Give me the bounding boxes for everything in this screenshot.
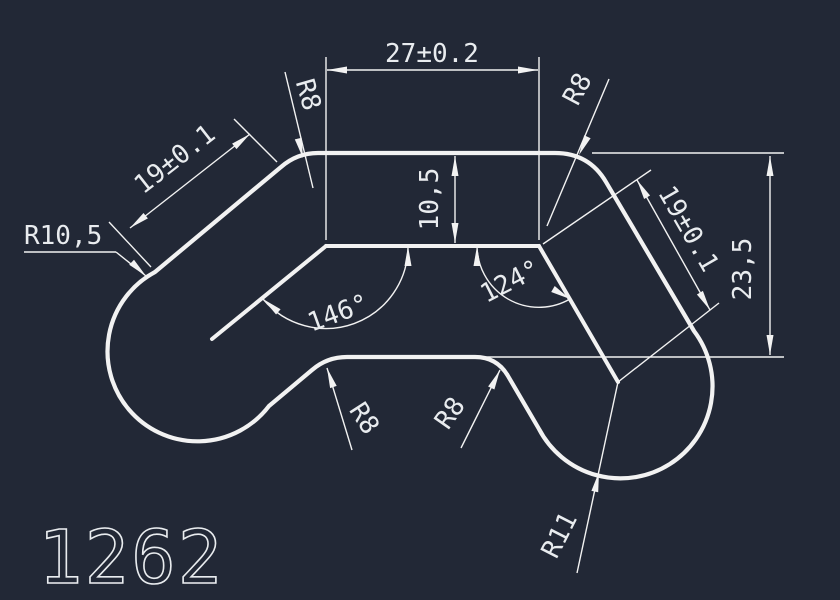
dim-label-overall-height: 23,5 xyxy=(728,238,758,301)
arrowhead-icon xyxy=(327,67,347,74)
arrowhead-icon xyxy=(232,134,250,149)
arrowhead-icon xyxy=(263,299,281,315)
radius-label-top-right: R8 xyxy=(557,68,598,110)
angle-label-left: 146° xyxy=(304,289,373,339)
arrowhead-icon xyxy=(697,291,710,310)
radius-left-cap: R10,5 xyxy=(24,221,146,276)
arrowhead-icon xyxy=(129,260,146,276)
radius-label-right-cap: R11 xyxy=(536,508,584,563)
radius-top-left: R8 xyxy=(285,72,326,188)
drawing-canvas: 27±0.2 10,5 23,5 19±0.1 xyxy=(0,0,840,600)
part-profile xyxy=(108,153,713,478)
radius-dip-left: R8 xyxy=(327,368,385,450)
extension-line xyxy=(109,222,151,267)
radius-label-top-left: R8 xyxy=(289,76,326,114)
arrowhead-icon xyxy=(474,246,481,266)
arrowhead-icon xyxy=(405,246,412,266)
angle-dim-left-bend: 146° xyxy=(263,246,412,338)
dim-label-wall-thickness: 10,5 xyxy=(415,168,445,231)
drawing-number: 1262 xyxy=(38,515,224,600)
radius-label-left-cap: R10,5 xyxy=(24,221,102,251)
arrowhead-icon xyxy=(637,180,650,199)
arrowhead-icon xyxy=(518,67,538,74)
dim-right-arm: 19±0.1 xyxy=(543,170,724,382)
part-outline xyxy=(108,153,713,478)
radius-dip-right: R8 xyxy=(429,370,500,448)
radius-label-dip-left: R8 xyxy=(343,397,385,440)
dim-label-top-width: 27±0.2 xyxy=(385,39,479,69)
arrowhead-icon xyxy=(767,156,774,176)
arrowhead-icon xyxy=(452,223,459,243)
angle-label-right: 124° xyxy=(476,254,545,309)
inner-edge-right-slant xyxy=(539,246,618,382)
arrowhead-icon xyxy=(327,368,337,388)
arrowhead-icon xyxy=(767,335,774,355)
radius-label-dip-right: R8 xyxy=(429,392,472,435)
arrowhead-icon xyxy=(130,213,148,228)
dim-label-right-arm: 19±0.1 xyxy=(651,181,724,277)
dim-wall-thickness: 10,5 xyxy=(415,156,459,243)
arrowhead-icon xyxy=(488,370,500,390)
cad-drawing-viewport: 27±0.2 10,5 23,5 19±0.1 xyxy=(0,0,840,600)
radius-top-right: R8 xyxy=(547,68,609,226)
dim-label-left-arm: 19±0.1 xyxy=(129,119,221,200)
arrowhead-icon xyxy=(452,156,459,176)
extension-line xyxy=(618,303,719,382)
